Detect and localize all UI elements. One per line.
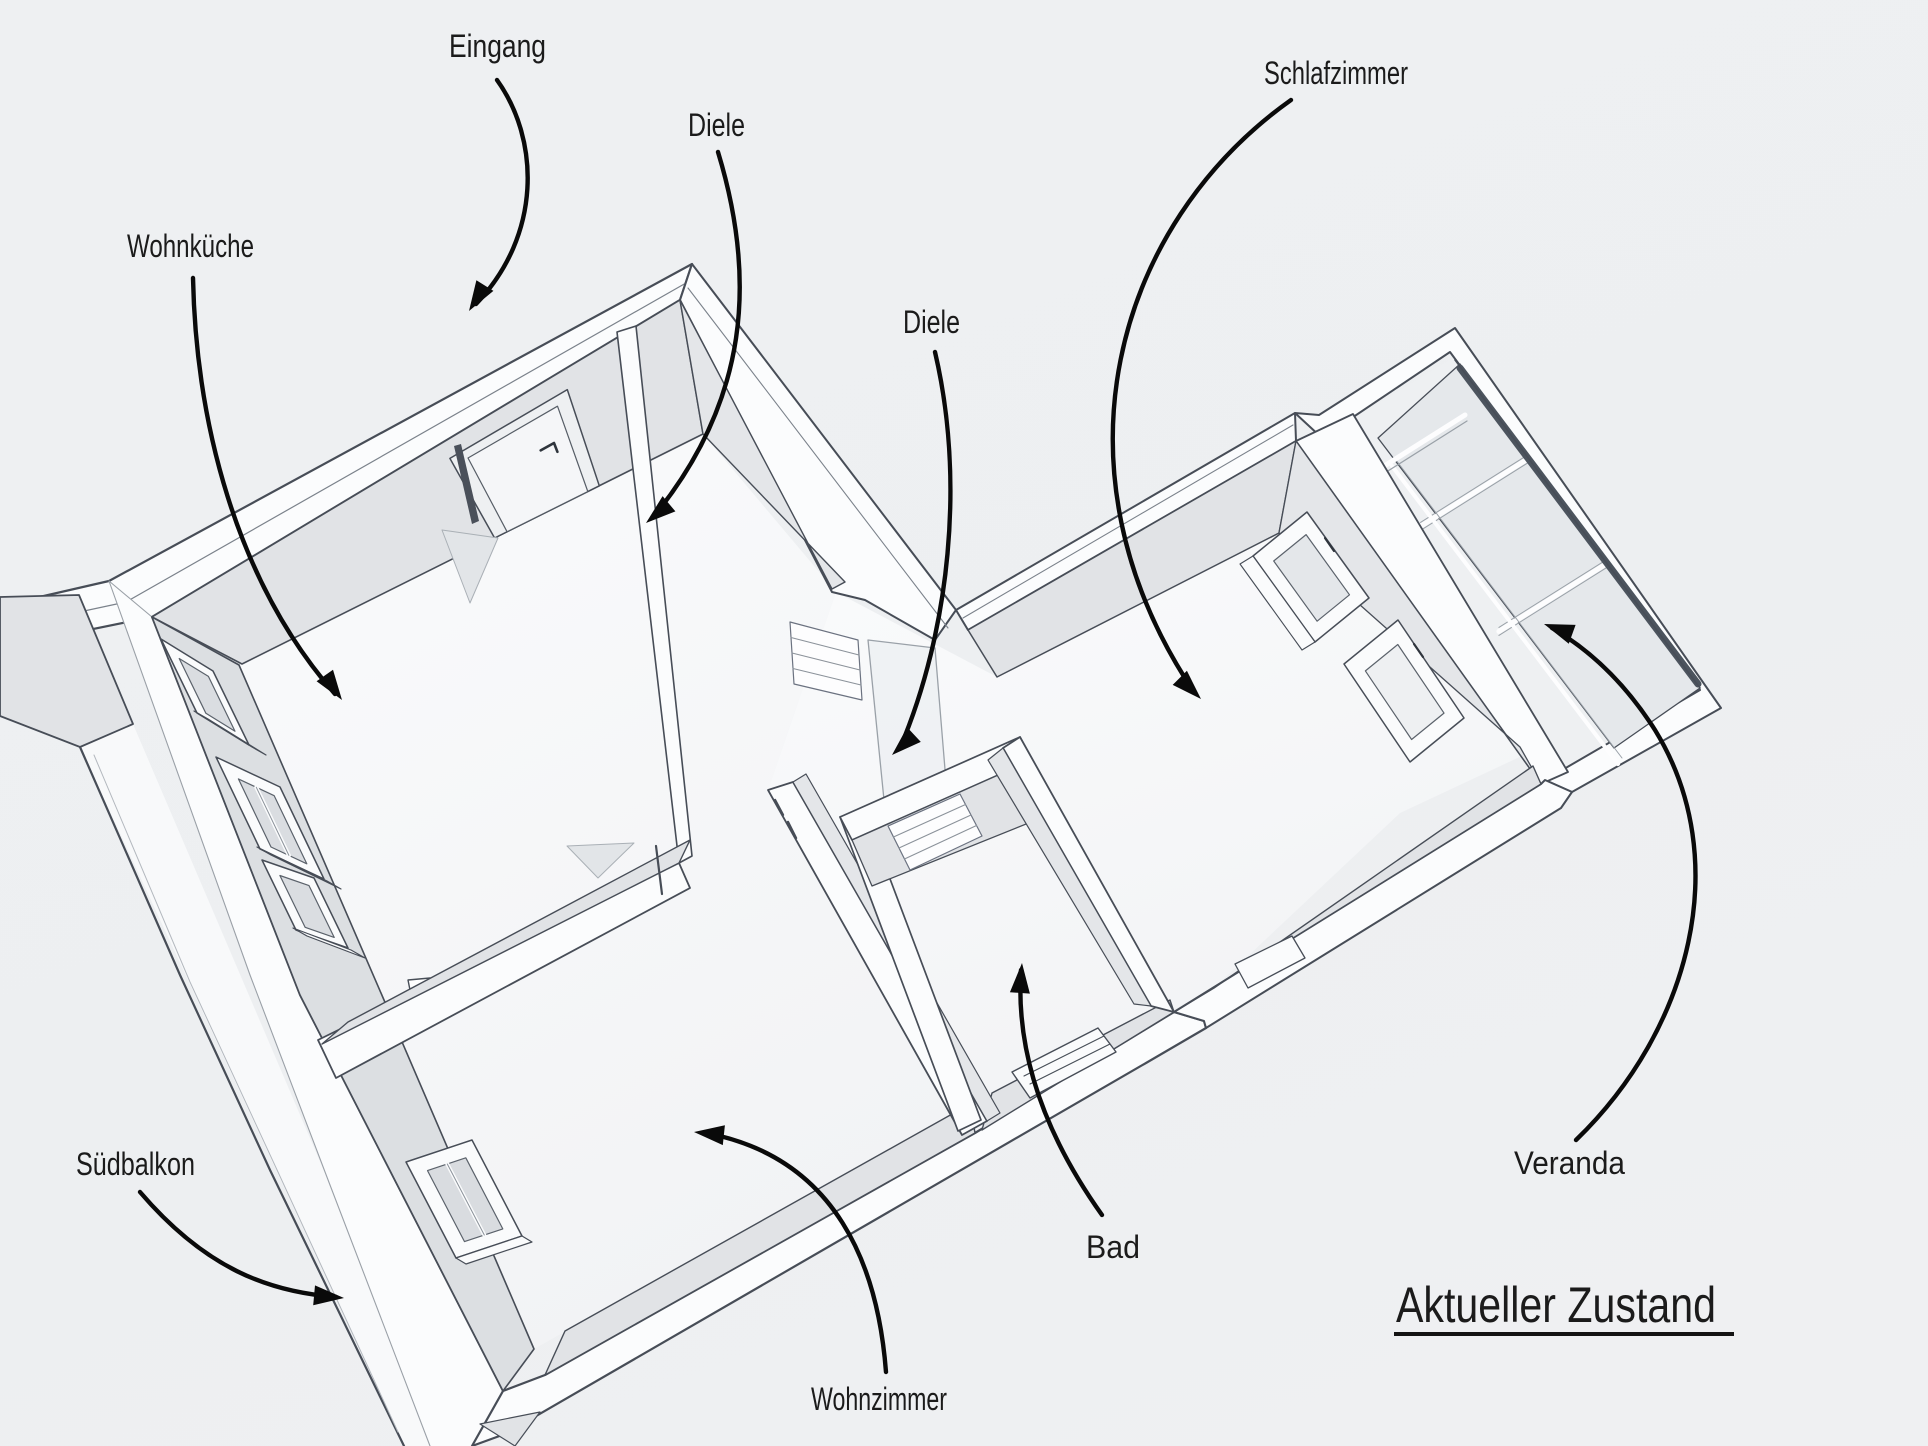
svg-text:Diele: Diele — [903, 304, 960, 340]
svg-text:Wohnküche: Wohnküche — [127, 228, 254, 264]
svg-text:Aktueller Zustand: Aktueller Zustand — [1396, 1277, 1716, 1333]
svg-text:Bad: Bad — [1086, 1229, 1140, 1265]
svg-text:Südbalkon: Südbalkon — [76, 1146, 195, 1182]
svg-text:Schlafzimmer: Schlafzimmer — [1264, 55, 1408, 91]
svg-text:Wohnzimmer: Wohnzimmer — [811, 1381, 947, 1417]
svg-text:Veranda: Veranda — [1514, 1145, 1625, 1181]
svg-text:Eingang: Eingang — [449, 28, 546, 64]
svg-text:Diele: Diele — [688, 107, 745, 143]
